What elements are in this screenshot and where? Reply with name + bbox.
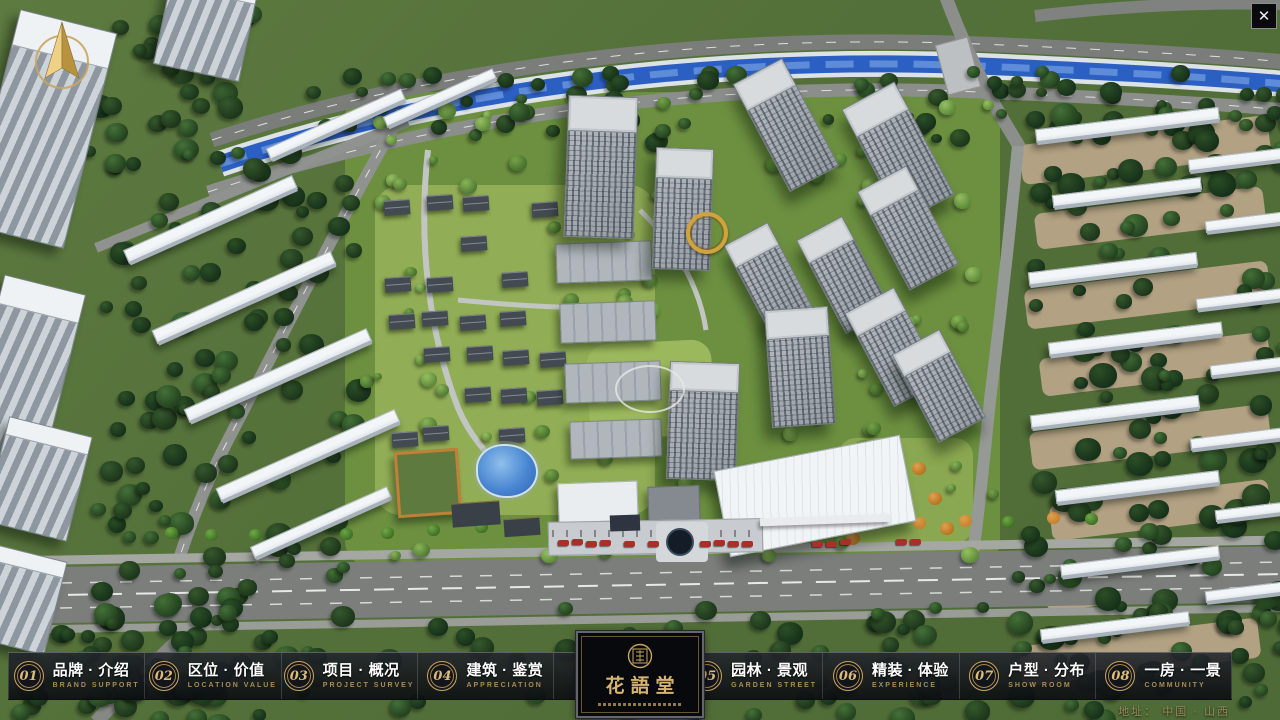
tree — [1163, 211, 1180, 226]
project-name: 花語堂 — [599, 671, 680, 698]
tree — [762, 549, 776, 562]
villa — [459, 315, 486, 332]
menu-label: 精装 · 体验 — [872, 663, 949, 679]
tree — [279, 554, 294, 568]
villa — [531, 201, 558, 218]
tree — [91, 503, 105, 516]
tree — [823, 114, 834, 124]
tree — [1129, 504, 1149, 522]
tree — [1095, 587, 1121, 610]
menu-sublabel: PROJECT SURVEY — [323, 682, 415, 689]
parked-car — [826, 541, 837, 547]
menu-sublabel: GARDEN STREET — [731, 682, 817, 689]
menu-sublabel: COMMUNITY — [1144, 682, 1221, 689]
tree — [154, 594, 180, 617]
menu-number-badge: 07 — [969, 661, 999, 691]
tree — [1236, 170, 1257, 189]
tree — [1155, 157, 1177, 177]
tree — [307, 192, 326, 209]
menu-label: 品牌 · 介绍 — [53, 663, 140, 679]
menu-group-right: 05 园林 · 景观 GARDEN STREET 06 精装 · 体验 EXPE… — [686, 653, 1232, 699]
tree — [858, 369, 868, 378]
tree — [1044, 166, 1061, 182]
tree — [1116, 294, 1132, 308]
tree — [965, 700, 991, 720]
tree — [183, 265, 201, 281]
tree — [81, 630, 95, 643]
tree — [482, 432, 492, 441]
parked-car — [728, 541, 739, 547]
tree — [871, 608, 885, 620]
gatehouse-roof — [503, 517, 540, 537]
menu-sublabel: SHOW ROOM — [1008, 682, 1085, 689]
villa — [503, 349, 530, 366]
tree — [987, 76, 1002, 90]
tree — [1154, 432, 1167, 443]
menu-number-badge: 01 — [14, 661, 44, 691]
villa — [502, 271, 529, 288]
tree — [961, 547, 979, 563]
midrise-building — [569, 418, 662, 459]
tree — [746, 708, 762, 720]
street-tree — [205, 529, 218, 541]
tree — [374, 373, 382, 380]
tree — [110, 422, 126, 436]
tree — [190, 607, 213, 627]
tree — [399, 73, 416, 88]
tree — [91, 582, 112, 601]
tree — [1021, 526, 1040, 543]
tree — [253, 709, 265, 720]
street-tree — [249, 529, 262, 541]
street-tree — [427, 524, 440, 536]
tree — [1118, 159, 1144, 182]
tree — [337, 562, 349, 573]
menu-label: 户型 · 分布 — [1008, 663, 1085, 679]
parked-car — [648, 541, 659, 547]
tree — [429, 156, 438, 164]
tree — [1250, 395, 1272, 415]
tree — [1032, 471, 1057, 494]
tree — [219, 605, 236, 621]
tree — [1077, 322, 1094, 338]
tree — [276, 338, 291, 352]
parked-car — [558, 540, 569, 546]
tree — [1229, 110, 1242, 122]
tree — [100, 461, 123, 482]
tree — [159, 620, 177, 636]
villa — [539, 351, 566, 368]
tree — [428, 618, 448, 636]
tree — [274, 308, 294, 326]
tree — [212, 367, 231, 384]
menu-number-badge: 02 — [149, 661, 179, 691]
tree — [195, 349, 215, 367]
tree — [954, 193, 972, 209]
project-logo-panel[interactable]: 花語堂 — [576, 631, 704, 718]
villa — [426, 194, 453, 211]
highrise-tower — [564, 95, 639, 239]
villa — [427, 277, 454, 294]
tree — [1026, 111, 1045, 128]
tree — [1100, 82, 1122, 102]
tree — [1255, 684, 1267, 695]
menu-item-interior[interactable]: 06 精装 · 体验 EXPERIENCE — [823, 653, 959, 699]
gate-roof — [610, 514, 641, 531]
parked-car — [896, 538, 907, 544]
villa — [536, 389, 563, 406]
tree — [890, 707, 915, 720]
tree — [1100, 391, 1113, 402]
tree — [461, 96, 473, 107]
address-text: 地址： 中国 · 山西 — [1118, 703, 1230, 719]
villa — [498, 427, 525, 444]
menu-number-badge: 06 — [833, 661, 863, 691]
tree — [281, 380, 303, 400]
tree — [697, 71, 719, 91]
tree — [1228, 620, 1244, 634]
tree — [121, 630, 144, 651]
tree — [509, 155, 527, 171]
tree — [1133, 278, 1153, 296]
menu-item-brand[interactable]: 01 品牌 · 介绍 BRAND SUPPORT — [8, 653, 145, 699]
tree — [242, 431, 256, 444]
tree — [1080, 223, 1100, 241]
close-button[interactable]: ✕ — [1251, 3, 1277, 29]
menu-label: 区位 · 价值 — [188, 663, 277, 679]
menu-number-badge: 08 — [1105, 661, 1135, 691]
tree — [1159, 370, 1171, 381]
villa — [421, 310, 448, 327]
menu-label: 园林 · 景观 — [731, 663, 817, 679]
tree — [1074, 377, 1088, 389]
tree — [1239, 119, 1252, 131]
tree — [119, 561, 139, 579]
tree — [983, 100, 993, 109]
tree — [882, 637, 900, 653]
tree — [1012, 571, 1025, 582]
tree — [390, 551, 400, 560]
tree — [118, 391, 134, 406]
tree — [1256, 87, 1273, 102]
tree — [965, 267, 982, 282]
tree — [106, 123, 127, 142]
tree — [159, 515, 171, 526]
logo-subtext-line — [598, 703, 682, 706]
tree — [939, 100, 956, 115]
tree — [1075, 438, 1101, 461]
menu-item-architecture[interactable]: 04 建筑 · 鉴赏 APPRECIATION — [418, 653, 554, 699]
tree — [1029, 579, 1044, 593]
tree — [1260, 611, 1277, 627]
tree — [531, 78, 546, 91]
tree — [1089, 363, 1117, 388]
midrise-building — [559, 300, 656, 343]
garden-path — [615, 365, 685, 413]
parked-car — [700, 541, 711, 547]
compass-north-icon — [28, 14, 96, 100]
menu-sublabel: LOCATION VALUE — [188, 682, 277, 689]
tree — [106, 617, 119, 629]
tree — [262, 630, 278, 644]
tree — [159, 193, 179, 211]
tree — [102, 97, 122, 115]
villa — [392, 431, 419, 448]
villa — [500, 387, 527, 404]
tree — [1030, 183, 1053, 203]
street-tree — [381, 527, 394, 539]
tree — [1129, 419, 1151, 439]
tree — [1073, 285, 1085, 296]
tree — [1036, 66, 1049, 78]
autumn-tree — [940, 522, 954, 535]
tree — [105, 154, 126, 173]
tree — [655, 124, 670, 138]
parked-car — [572, 539, 583, 545]
parked-car — [910, 539, 921, 545]
tree — [897, 624, 910, 635]
parked-car — [714, 540, 725, 546]
highrise-tower — [764, 306, 836, 428]
villa — [461, 235, 488, 252]
menu-label: 一房 · 一景 — [1144, 663, 1221, 679]
tree — [203, 547, 225, 567]
tree — [131, 276, 147, 290]
tree — [977, 602, 989, 613]
swimming-pool — [476, 444, 538, 498]
tree — [1029, 299, 1044, 312]
tree — [837, 703, 857, 720]
tree — [546, 125, 560, 137]
tree — [421, 372, 437, 387]
villa — [499, 310, 526, 327]
villa — [462, 196, 489, 213]
tree — [947, 484, 955, 492]
villa — [465, 386, 492, 403]
tree — [1100, 243, 1117, 259]
tree — [328, 217, 349, 236]
menu-sublabel: BRAND SUPPORT — [53, 682, 140, 689]
tree — [151, 711, 169, 720]
autumn-tree — [912, 462, 926, 475]
tree — [178, 119, 198, 137]
menu-number-badge: 04 — [427, 661, 457, 691]
tree — [996, 109, 1008, 119]
street-tree — [959, 515, 972, 527]
villa — [424, 347, 451, 364]
tree — [1084, 701, 1104, 719]
tree — [238, 579, 256, 595]
tree — [498, 73, 514, 87]
menu-item-views[interactable]: 08 一房 · 一景 COMMUNITY — [1096, 653, 1232, 699]
street-tree — [1002, 516, 1015, 528]
menu-label: 建筑 · 鉴赏 — [466, 663, 543, 679]
street-tree — [340, 528, 353, 540]
parked-car — [586, 541, 597, 547]
autumn-tree — [928, 492, 942, 505]
tree — [1008, 611, 1034, 634]
entrance-emblem — [666, 528, 694, 556]
parked-car — [742, 540, 753, 546]
tree — [657, 97, 671, 109]
tree — [12, 704, 30, 720]
villa — [466, 345, 493, 362]
tree — [1011, 76, 1023, 87]
seal-icon — [627, 643, 653, 669]
tree — [227, 238, 245, 255]
tree — [1243, 663, 1265, 683]
tree — [200, 263, 220, 281]
tree — [386, 135, 398, 145]
tree — [149, 500, 163, 512]
tree — [151, 213, 168, 228]
menu-item-garden[interactable]: 05 园林 · 景观 GARDEN STREET — [686, 653, 823, 699]
tree — [545, 469, 559, 482]
tree — [1126, 452, 1153, 476]
tree — [1120, 221, 1135, 234]
tree — [413, 543, 429, 558]
tree — [1240, 88, 1254, 101]
tree — [1036, 88, 1046, 97]
tree — [393, 178, 406, 190]
tree — [1065, 699, 1079, 711]
tree — [1140, 523, 1159, 540]
tree — [133, 44, 148, 57]
tree — [689, 88, 702, 100]
parked-car — [600, 540, 611, 546]
tree — [123, 531, 136, 543]
villa — [384, 276, 411, 293]
tree — [509, 103, 530, 122]
street-tree — [165, 527, 178, 539]
presentation-window: ✕ 01 品牌 · 介绍 BRAND SUPPORT 02 区位 · 价值 LO… — [0, 0, 1280, 720]
villa — [388, 313, 415, 330]
tree — [867, 422, 881, 435]
tree — [163, 444, 187, 466]
menu-group-left: 01 品牌 · 介绍 BRAND SUPPORT 02 区位 · 价值 LOCA… — [8, 653, 554, 699]
tree — [343, 68, 362, 85]
tree — [187, 709, 207, 720]
parked-car — [812, 541, 823, 547]
menu-item-project[interactable]: 03 项目 · 概况 PROJECT SURVEY — [282, 653, 418, 699]
tree — [360, 375, 374, 388]
tree — [951, 461, 962, 471]
menu-number-badge: 03 — [284, 661, 314, 691]
tree — [1208, 172, 1235, 197]
menu-sublabel: EXPERIENCE — [872, 682, 949, 689]
tree — [218, 96, 243, 119]
menu-sublabel: APPRECIATION — [466, 682, 543, 689]
tree — [783, 427, 798, 441]
tree — [218, 455, 238, 473]
tree — [188, 587, 209, 606]
villa — [384, 199, 411, 216]
menu-item-location[interactable]: 02 区位 · 价值 LOCATION VALUE — [145, 653, 281, 699]
tree — [390, 697, 411, 716]
menu-item-floorplan[interactable]: 07 户型 · 分布 SHOW ROOM — [960, 653, 1096, 699]
tree — [988, 489, 999, 499]
colonnade — [552, 530, 758, 537]
tree — [1154, 451, 1171, 467]
tree — [1267, 106, 1280, 120]
tree — [61, 628, 75, 641]
midrise-building — [555, 240, 652, 283]
tree — [156, 385, 181, 408]
gatehouse-roof — [451, 500, 501, 527]
tree — [346, 243, 362, 258]
tree — [931, 134, 942, 144]
tree — [136, 482, 150, 495]
tree — [126, 157, 142, 171]
tree — [243, 158, 267, 179]
tree — [572, 68, 593, 87]
tree — [331, 606, 355, 627]
gold-sculpture — [686, 212, 728, 254]
menu-label: 项目 · 概况 — [323, 663, 415, 679]
tree — [195, 463, 217, 483]
parked-car — [624, 541, 635, 547]
tree — [125, 301, 142, 317]
tree — [180, 84, 199, 101]
parked-car — [840, 538, 851, 544]
tree — [1254, 448, 1267, 460]
villa — [423, 425, 450, 442]
tree — [1231, 648, 1248, 664]
